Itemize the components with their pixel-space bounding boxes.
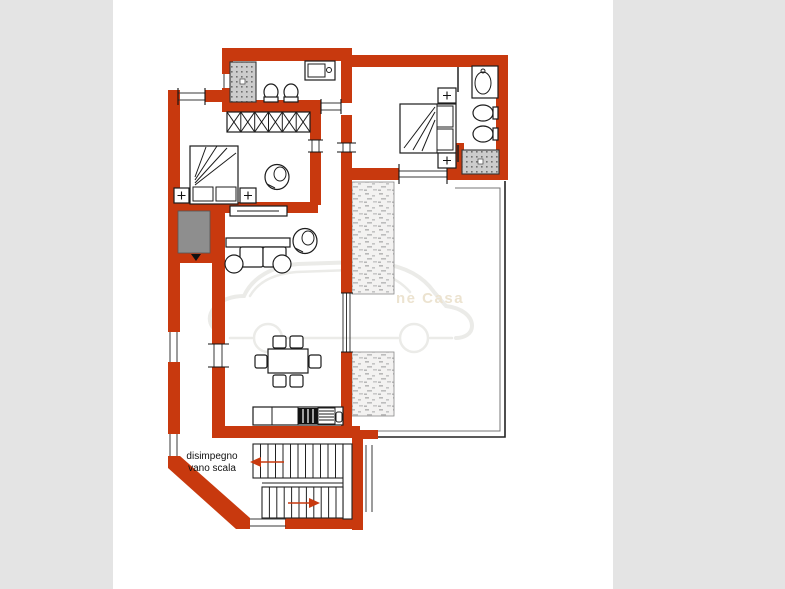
pergola-strip-upper [352, 182, 394, 294]
tv-cabinet-icon [230, 206, 287, 216]
double-bed-icon [400, 104, 456, 153]
nightstand-icon [438, 88, 456, 103]
nightstand-icon [174, 188, 189, 203]
watermark-text: ne Casa [396, 290, 464, 307]
armchair-icon [265, 165, 289, 190]
sink-icon [472, 66, 498, 98]
stair-landing [343, 444, 352, 519]
sink-icon [305, 61, 335, 80]
kitchen-counter-icon [253, 407, 343, 425]
nightstand-icon [240, 188, 256, 203]
toilet-icon [473, 126, 498, 142]
armchair-icon [293, 229, 317, 254]
toilet-icon [264, 84, 278, 102]
bidet-icon [473, 105, 498, 121]
stairwell-label-line1: disimpegno [186, 451, 238, 462]
floor-plan-page: ne Casa [0, 0, 785, 589]
pergola-strip-lower [352, 352, 394, 416]
wardrobe-icon [227, 112, 310, 132]
bidet-icon [284, 84, 298, 102]
double-bed-icon [190, 146, 238, 204]
nightstand-icon [438, 153, 456, 168]
stairwell-label: disimpegno vano scala [186, 451, 238, 474]
floor-plan-drawing: ne Casa [0, 0, 785, 589]
stairwell-label-line2: vano scala [188, 463, 236, 474]
